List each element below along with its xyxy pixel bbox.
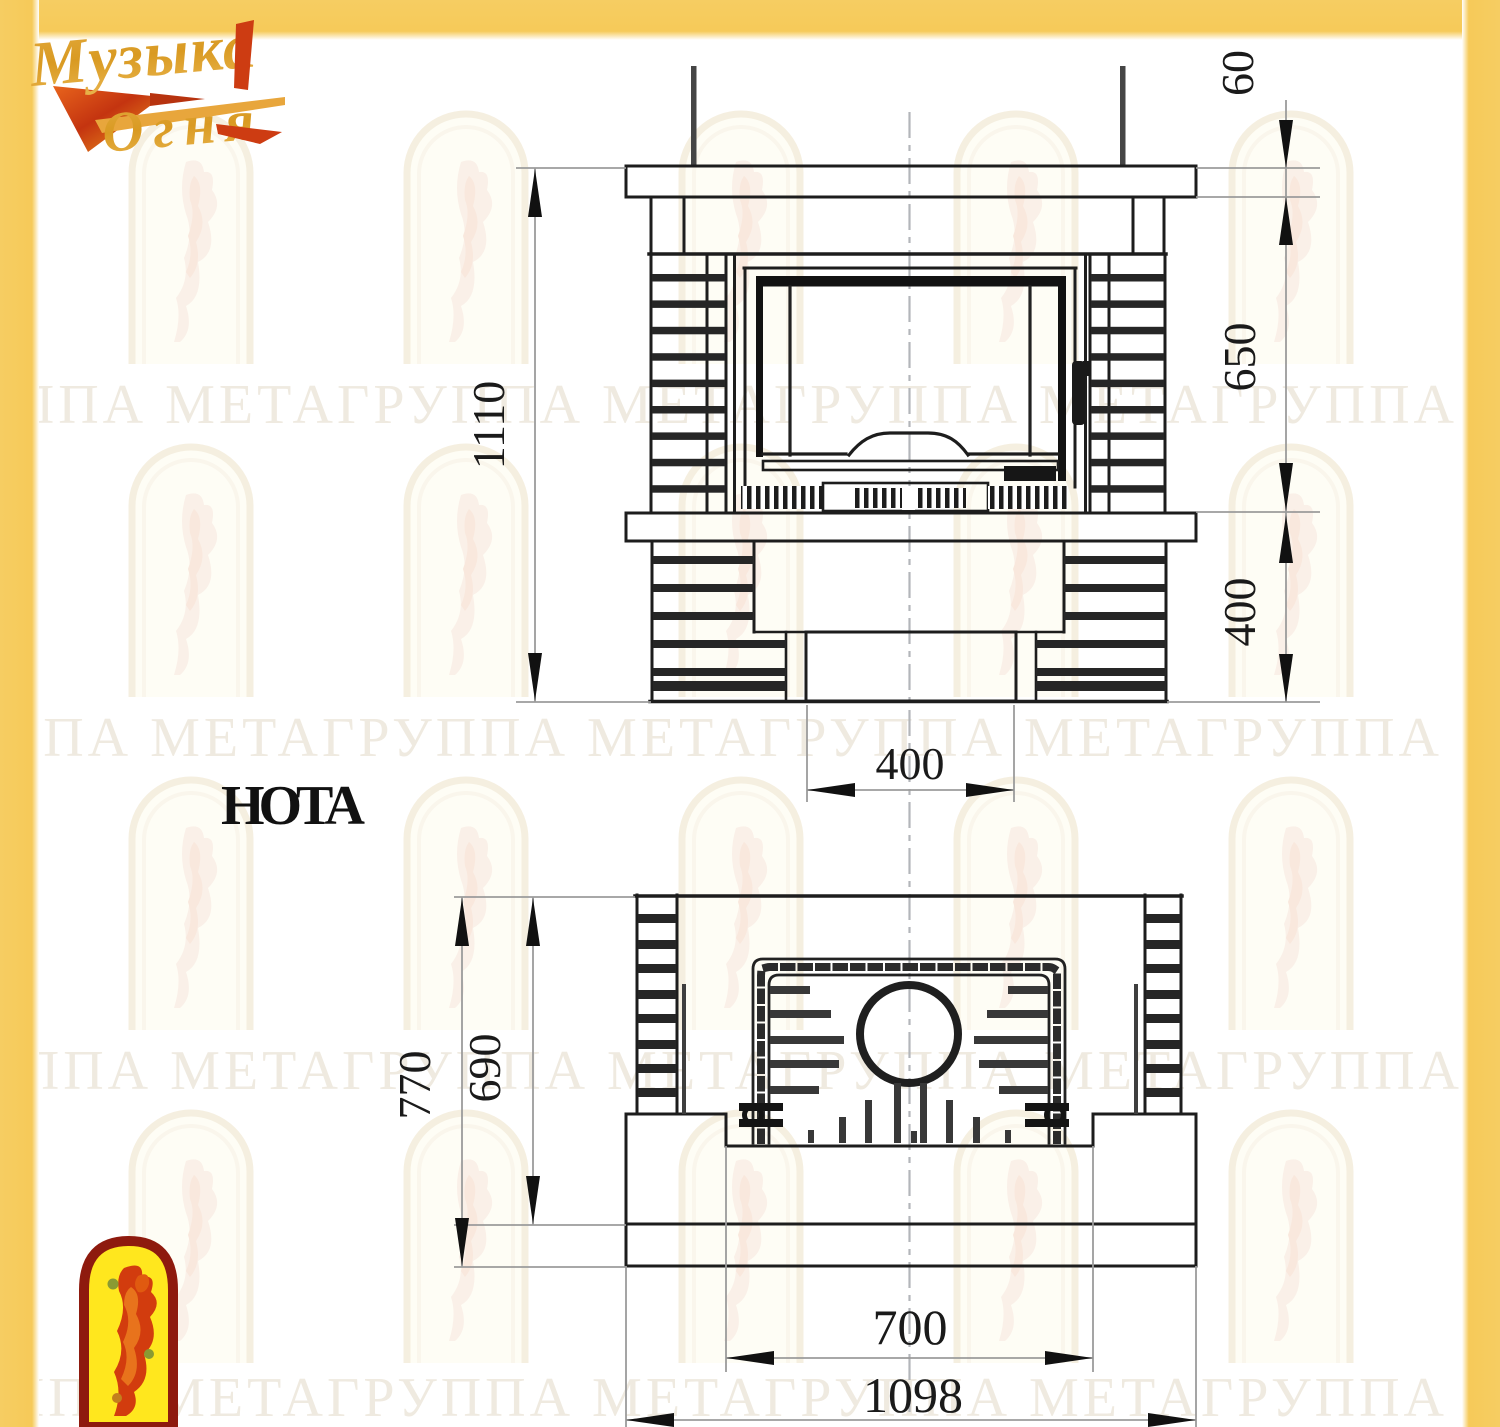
svg-text:700: 700: [873, 1299, 948, 1355]
svg-text:770: 770: [389, 1051, 440, 1120]
svg-text:650: 650: [1214, 323, 1265, 392]
svg-text:690: 690: [459, 1034, 510, 1103]
svg-text:60: 60: [1212, 50, 1263, 96]
svg-text:400: 400: [1214, 578, 1265, 647]
svg-text:НОТА: НОТА: [221, 775, 367, 837]
svg-text:1110: 1110: [463, 381, 514, 470]
svg-text:ГРУППА МЕТАГРУППА МЕТАГРУППА М: ГРУППА МЕТАГРУППА МЕТАГРУППА МЕТАГРУППА …: [0, 374, 1500, 436]
svg-text:ГРУППА МЕТАГРУППА МЕТАГРУППА М: ГРУППА МЕТАГРУППА МЕТАГРУППА МЕТАГРУППА …: [0, 1367, 1500, 1427]
svg-text:1098: 1098: [863, 1367, 963, 1423]
svg-text:ГРУППА МЕТАГРУППА МЕТАГРУППА М: ГРУППА МЕТАГРУППА МЕТАГРУППА МЕТАГРУППА …: [0, 707, 1500, 769]
svg-text:ГРУППА МЕТАГРУППА МЕТАГРУППА М: ГРУППА МЕТАГРУППА МЕТАГРУППА МЕТАГРУППА …: [0, 1040, 1500, 1102]
svg-text:400: 400: [876, 738, 945, 789]
